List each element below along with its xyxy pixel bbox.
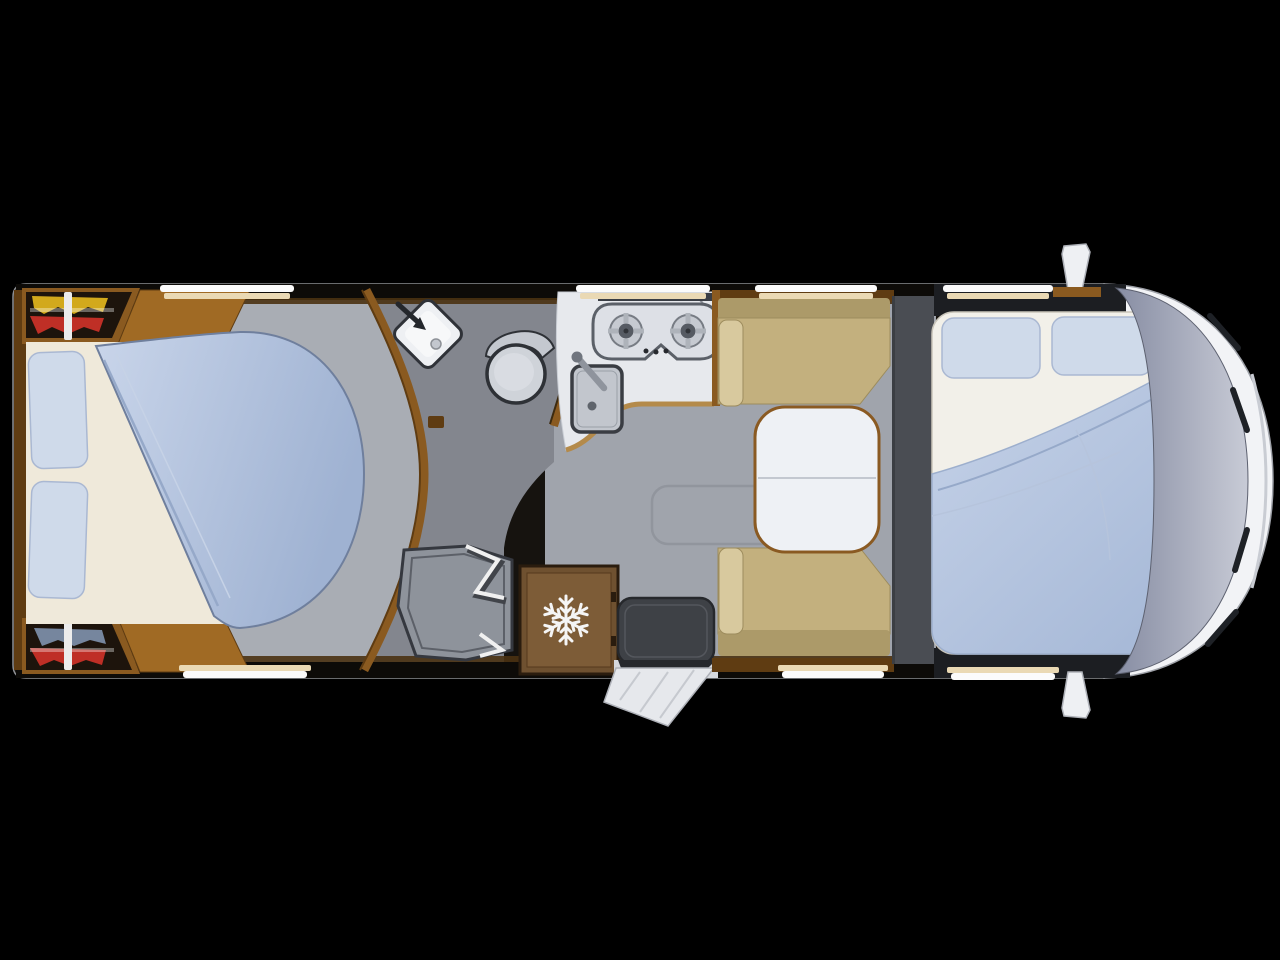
door-latch [428,416,444,428]
bed-pillow-2 [28,481,88,599]
cab-partition-edge [892,296,895,664]
mirror-bottom [1062,672,1090,718]
entrance [604,598,718,726]
basin-drain [431,339,441,349]
toilet-bowl-inner [494,353,534,391]
bed-pillow-1 [28,351,88,469]
bench-seat-bottom [718,548,890,634]
bench-bottom-armrest [719,548,743,634]
window-top-4 [943,285,1053,299]
bench-top-armrest [719,320,743,406]
door-mat [618,598,714,664]
fridge-hinge-1 [611,592,616,602]
window-bottom-2 [778,665,888,678]
window-top-1 [160,285,294,299]
front-bed-pillow-right [1052,317,1152,375]
cab-partition-band [892,296,934,664]
window-top-2 [576,285,710,299]
screenshot-root [0,0,1280,960]
window-top-3 [755,285,877,299]
front-bed-pillow-left [942,318,1040,378]
fridge-hinge-2 [611,636,616,646]
entry-door-open [604,668,714,726]
wardrobe-top-rail [64,292,72,340]
bench-seat-top [718,318,890,404]
wardrobe-bottom-rail [64,622,72,670]
sink-drain [588,402,597,411]
bench-bottom-backrest [718,630,890,656]
window-sill-top-right [1053,287,1101,297]
dinette-table [755,407,879,552]
sink-faucet-base [572,352,583,363]
window-bottom-1 [179,665,311,678]
motorhome-floorplan [0,0,1280,960]
window-bottom-3 [947,667,1059,680]
mirror-top [1062,244,1090,290]
front-bed [932,284,1166,678]
